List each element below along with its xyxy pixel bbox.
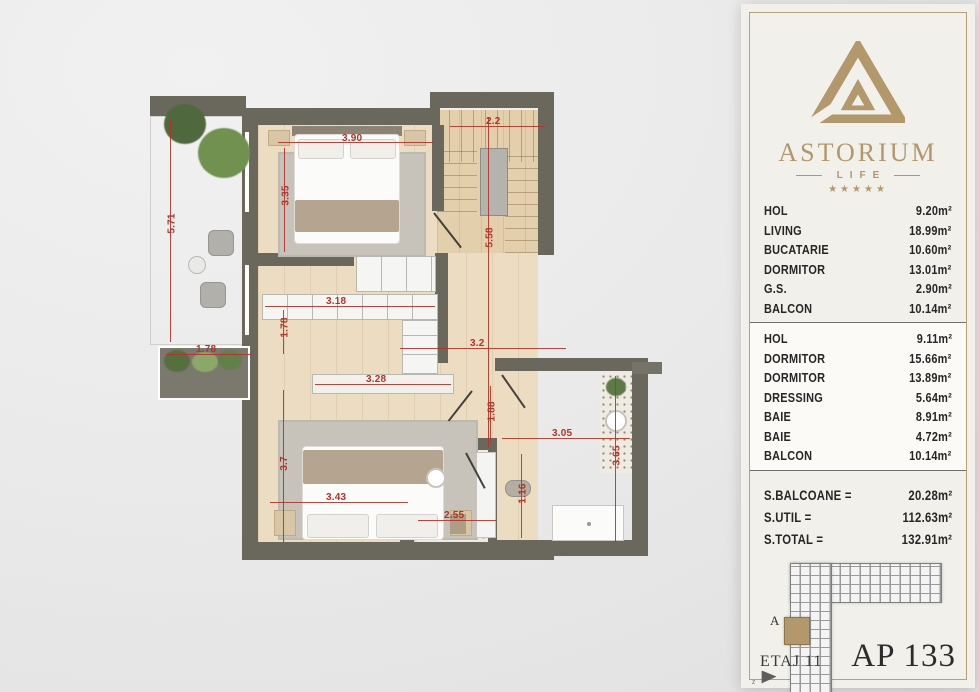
wall-segment (242, 108, 440, 125)
room-name: DRESSING (764, 390, 823, 405)
wall-segment (538, 92, 554, 255)
shower-tray (552, 505, 624, 541)
wall-segment (495, 358, 648, 371)
rule-line (796, 175, 822, 176)
stars-icon: ★★★★★ (750, 184, 966, 195)
vanity (476, 452, 496, 538)
room-name: HOL (764, 331, 788, 346)
room-area: 10.60m² (910, 242, 952, 257)
room-name: G.S. (764, 281, 787, 296)
room-name: DORMITOR (764, 370, 825, 385)
room-area: 4.72m² (916, 429, 952, 444)
floor-plan: 5.71 3.90 3.35 2.2 5.58 3.18 1.78 1.78 3… (150, 90, 662, 568)
room-name: LIVING (764, 223, 802, 238)
nightstand (274, 510, 296, 536)
room-area: 8.91m² (916, 409, 952, 424)
sink (605, 410, 627, 432)
apartment-number: AP 133 (851, 638, 956, 675)
plant-icon (218, 350, 242, 370)
room-name: BUCATARIE (764, 242, 829, 257)
wardrobe (262, 294, 438, 320)
wall-segment (430, 92, 554, 108)
balcony-door (245, 265, 249, 335)
wall-segment (632, 358, 648, 556)
room-area: 13.01m² (910, 262, 952, 277)
room-row: BAIE8.91m² (764, 407, 952, 427)
plant-icon (192, 352, 218, 372)
info-panel: ASTORIUM LIFE ★★★★★ HOL9.20m² LIVING18.9… (741, 4, 975, 688)
room-area: 13.89m² (910, 370, 952, 385)
wall-segment (632, 362, 662, 374)
room-row: HOL9.20m² (764, 201, 952, 221)
room-area: 10.14m² (910, 448, 952, 463)
room-area: 5.64m² (916, 390, 952, 405)
total-value: 132.91m² (901, 532, 952, 547)
dim-label: 3.90 (342, 133, 362, 144)
dim-label: 3.65 (612, 445, 623, 465)
plant-icon (606, 378, 626, 396)
room-name: BALCON (764, 301, 812, 316)
balcony-chair (208, 230, 234, 256)
dim-label: 3.43 (326, 492, 346, 503)
room-row: DORMITOR13.01m² (764, 260, 952, 280)
room-row: BALCON10.14m² (764, 446, 952, 466)
total-label: S.UTIL = (764, 510, 811, 525)
dim-line (488, 118, 489, 448)
room-row: DORMITOR13.89m² (764, 368, 952, 388)
room-name: BAIE (764, 429, 791, 444)
dim-label: 5.71 (167, 213, 178, 233)
brand-block: ASTORIUM LIFE ★★★★★ (750, 13, 966, 195)
balcony-chair (200, 282, 226, 308)
room-name: DORMITOR (764, 262, 825, 277)
brand-subtitle: LIFE (750, 170, 966, 181)
bed-blanket (303, 450, 443, 484)
stair-landing (480, 148, 508, 216)
room-row: DORMITOR15.66m² (764, 349, 952, 369)
total-value: 112.63m² (902, 510, 952, 525)
total-label: S.BALCOANE = (764, 488, 852, 503)
wardrobe (402, 320, 438, 374)
room-area: 9.11m² (916, 331, 952, 346)
wall-segment (495, 540, 648, 556)
wall-segment (432, 125, 444, 211)
nightstand (404, 130, 426, 146)
room-name: BAIE (764, 409, 791, 424)
dim-label: 3.18 (326, 296, 346, 307)
brand-name: ASTORIUM (750, 138, 966, 168)
dim-label: 5.58 (485, 227, 496, 247)
dim-label: 1.78 (196, 344, 216, 355)
cabinet (356, 256, 436, 292)
pillow (307, 514, 369, 538)
room-area: 18.99m² (910, 223, 952, 238)
dim-label: 3.2 (470, 338, 485, 349)
dim-label: 3.05 (552, 428, 572, 439)
astorium-logo-icon (811, 41, 905, 123)
dim-label: 1.88 (487, 401, 498, 421)
room-area: 9.20m² (916, 203, 952, 218)
balcony-table (188, 256, 206, 274)
dim-label: 3.35 (281, 185, 292, 205)
room-name: BALCON (764, 448, 812, 463)
floor-label: ETAJ 11 (760, 653, 822, 671)
total-row: S.BALCOANE =20.28m² (764, 485, 952, 507)
total-label: S.TOTAL = (764, 532, 823, 547)
dim-label: 2.55 (444, 510, 464, 521)
room-row: HOL9.11m² (764, 329, 952, 349)
room-row: G.S.2.90m² (764, 279, 952, 299)
room-row: BALCON10.14m² (764, 299, 952, 319)
panel-footer: ETAJ 11 AP 133 (750, 638, 966, 675)
nightstand (268, 130, 290, 146)
total-row: S.UTIL =112.63m² (764, 507, 952, 529)
room-area: 15.66m² (910, 351, 952, 366)
room-row: BAIE4.72m² (764, 427, 952, 447)
bed-blanket (295, 200, 399, 232)
pillow (376, 514, 438, 538)
rooms-list-floor1: HOL9.20m² LIVING18.99m² BUCATARIE10.60m²… (750, 195, 966, 322)
room-area: 2.90m² (916, 281, 952, 296)
brand-sub-label: LIFE (830, 170, 887, 181)
dim-label: 3.7 (279, 456, 290, 471)
dim-line (265, 306, 435, 307)
dim-label: 3.28 (366, 374, 386, 385)
panel-border: ASTORIUM LIFE ★★★★★ HOL9.20m² LIVING18.9… (749, 12, 967, 680)
rule-line (894, 175, 920, 176)
room-name: DORMITOR (764, 351, 825, 366)
room-area: 10.14m² (910, 301, 952, 316)
total-row: S.TOTAL =132.91m² (764, 529, 952, 551)
dim-label: 1.78 (280, 317, 291, 337)
rooms-list-floor2: HOL9.11m² DORMITOR15.66m² DORMITOR13.89m… (750, 322, 966, 471)
room-row: LIVING18.99m² (764, 221, 952, 241)
plant-icon (198, 128, 250, 178)
totals-block: S.BALCOANE =20.28m² S.UTIL =112.63m² S.T… (750, 471, 966, 551)
sink (426, 468, 446, 488)
room-row: BUCATARIE10.60m² (764, 240, 952, 260)
total-value: 20.28m² (908, 488, 952, 503)
room-row: DRESSING5.64m² (764, 388, 952, 408)
dim-label: 1.16 (518, 483, 529, 503)
room-name: HOL (764, 203, 788, 218)
shower-drain (587, 522, 591, 526)
north-arrow-letter: z (752, 677, 755, 686)
keyplan-section-label: A (770, 613, 779, 629)
